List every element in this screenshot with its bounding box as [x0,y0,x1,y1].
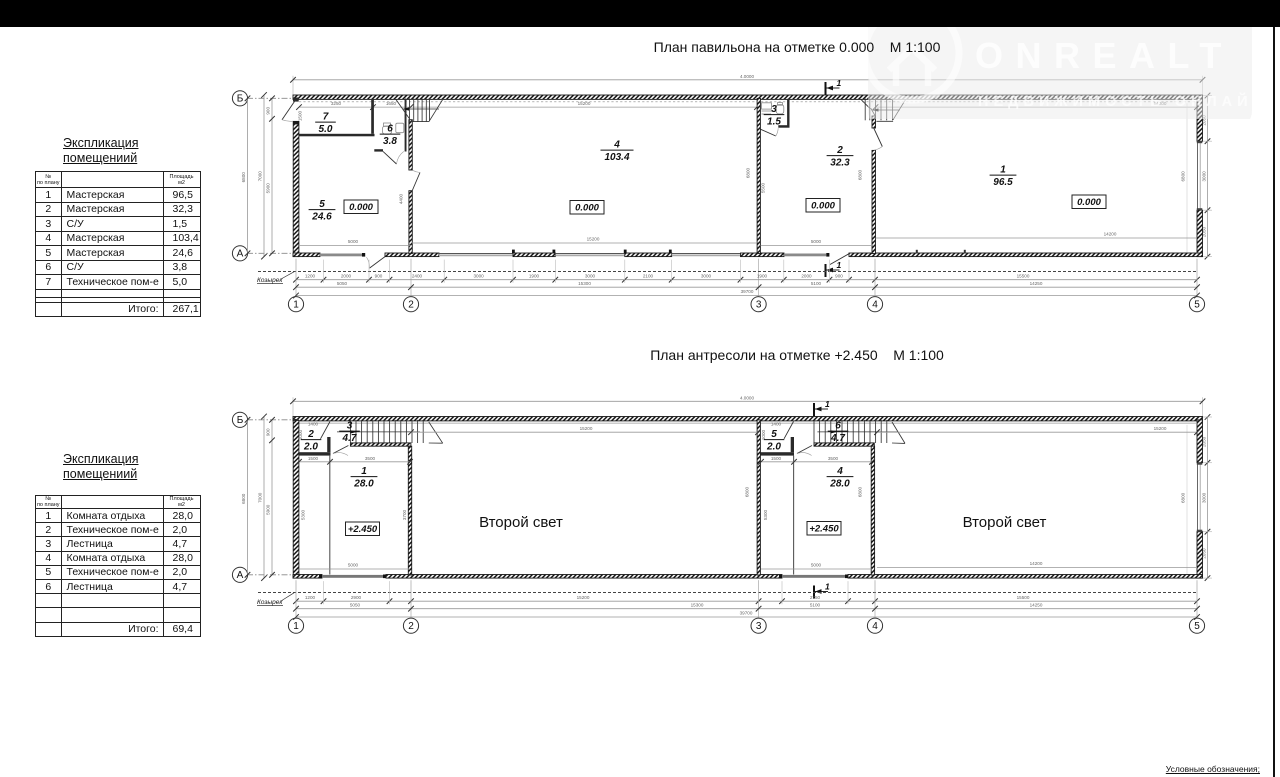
svg-text:3: 3 [771,104,777,115]
svg-text:5300: 5300 [301,509,306,520]
svg-text:2100: 2100 [643,273,654,278]
svg-text:15300: 15300 [578,281,591,286]
svg-text:3500: 3500 [828,456,839,461]
svg-text:5000: 5000 [811,239,822,244]
svg-text:1500: 1500 [308,456,319,461]
svg-text:6800: 6800 [858,169,863,180]
svg-text:103.4: 103.4 [604,152,629,163]
svg-text:15200: 15200 [587,237,600,242]
svg-text:4: 4 [872,300,878,311]
svg-text:15200: 15200 [578,101,591,106]
svg-text:4.7: 4.7 [342,433,357,444]
svg-text:39700: 39700 [740,611,753,616]
svg-text:1200: 1200 [305,595,316,600]
svg-text:1500: 1500 [771,456,782,461]
svg-text:Б: Б [237,415,244,426]
svg-text:А: А [237,249,244,260]
svg-text:900: 900 [375,273,383,278]
svg-text:4: 4 [836,466,843,477]
svg-text:5300: 5300 [763,509,768,520]
svg-text:6800: 6800 [746,167,751,178]
svg-text:Б: Б [237,94,244,105]
svg-text:0.000: 0.000 [575,203,599,214]
svg-text:6800: 6800 [858,486,863,497]
svg-text:3700: 3700 [402,509,407,520]
svg-text:5: 5 [1194,300,1200,311]
svg-text:1900: 1900 [757,273,768,278]
svg-text:0.000: 0.000 [1077,197,1101,208]
svg-text:3500: 3500 [365,456,376,461]
svg-text:5000: 5000 [811,563,822,568]
svg-text:3000: 3000 [473,273,484,278]
svg-text:15200: 15200 [1154,426,1167,431]
svg-text:3: 3 [756,300,762,311]
svg-text:1400: 1400 [308,421,319,426]
svg-text:900: 900 [266,428,271,436]
svg-text:4400: 4400 [399,193,404,204]
svg-text:15500: 15500 [1017,595,1030,600]
svg-text:НЕДВИЖИМОСТЬ ОНЛАЙН: НЕДВИЖИМОСТЬ ОНЛАЙН [978,92,1268,110]
svg-text:5100: 5100 [810,602,821,607]
svg-text:1: 1 [825,582,830,592]
svg-text:5: 5 [1194,621,1200,632]
svg-text:+2.450: +2.450 [348,524,378,535]
svg-text:15200: 15200 [580,426,593,431]
svg-text:15300: 15300 [691,602,704,607]
svg-text:39700: 39700 [741,289,754,294]
svg-text:3: 3 [347,421,353,432]
svg-text:900: 900 [835,273,843,278]
svg-text:0.000: 0.000 [349,202,373,213]
svg-text:900: 900 [266,107,271,115]
svg-text:2750: 2750 [810,595,821,600]
svg-text:6800: 6800 [241,493,246,504]
svg-text:1: 1 [293,300,299,311]
svg-text:1000: 1000 [761,429,766,440]
svg-text:5900: 5900 [266,183,271,194]
svg-text:5: 5 [319,199,325,210]
svg-text:28.0: 28.0 [829,478,850,489]
svg-text:1.5: 1.5 [767,116,781,127]
svg-text:А: А [237,570,244,581]
svg-text:5000: 5000 [348,563,359,568]
svg-text:7: 7 [323,112,329,123]
svg-text:Козырек: Козырек [257,277,283,284]
svg-text:96.5: 96.5 [993,177,1013,188]
svg-text:1: 1 [1000,165,1006,176]
svg-text:5500: 5500 [760,182,765,193]
svg-text:1: 1 [825,399,830,409]
svg-text:4: 4 [613,140,620,151]
svg-text:6800: 6800 [745,486,750,497]
svg-text:3: 3 [756,621,762,632]
svg-text:3000: 3000 [585,273,596,278]
svg-text:6800: 6800 [1181,171,1186,182]
svg-text:3000: 3000 [1201,492,1206,503]
svg-text:7000: 7000 [258,171,263,182]
svg-text:6800: 6800 [241,172,246,183]
svg-text:0.000: 0.000 [811,201,835,212]
svg-text:24.6: 24.6 [311,211,332,222]
svg-text:3000: 3000 [701,273,712,278]
svg-text:4.7: 4.7 [830,433,845,444]
svg-text:14250: 14250 [1030,602,1043,607]
svg-text:2000: 2000 [801,273,812,278]
svg-text:2400: 2400 [412,273,423,278]
svg-text:2000: 2000 [341,273,352,278]
svg-text:2: 2 [408,621,414,632]
svg-text:5.0: 5.0 [319,124,333,135]
svg-text:1900: 1900 [529,273,540,278]
svg-text:2: 2 [408,300,414,311]
svg-text:3.8: 3.8 [383,136,397,147]
svg-text:Второй свет: Второй свет [479,514,563,531]
svg-text:2: 2 [307,429,314,440]
svg-text:7000: 7000 [258,492,263,503]
svg-text:6: 6 [835,421,841,432]
svg-text:5900: 5900 [266,504,271,515]
svg-text:4.0000: 4.0000 [740,74,754,79]
svg-text:5: 5 [771,429,777,440]
svg-text:1000: 1000 [298,429,303,440]
svg-text:2.0: 2.0 [766,441,781,452]
svg-text:1500: 1500 [298,110,303,121]
svg-text:1: 1 [293,621,299,632]
svg-text:15200: 15200 [577,595,590,600]
svg-text:5050: 5050 [337,281,348,286]
svg-text:1400: 1400 [771,421,782,426]
svg-text:2900: 2900 [351,595,362,600]
svg-text:5050: 5050 [350,602,361,607]
svg-text:1: 1 [361,466,367,477]
svg-text:Козырек: Козырек [257,599,283,606]
svg-text:2: 2 [836,145,843,156]
svg-text:15500: 15500 [1017,273,1030,278]
svg-text:6800: 6800 [1181,492,1186,503]
svg-text:14200: 14200 [1030,561,1043,566]
svg-text:28.0: 28.0 [353,478,374,489]
svg-text:1200: 1200 [305,273,316,278]
svg-text:4: 4 [872,621,878,632]
svg-text:+2.450: +2.450 [809,524,839,535]
svg-text:3000: 3000 [1201,171,1206,182]
svg-text:14250: 14250 [1030,281,1043,286]
svg-text:5000: 5000 [348,239,359,244]
svg-text:Второй свет: Второй свет [963,514,1047,531]
svg-text:1: 1 [837,260,842,270]
svg-text:32.3: 32.3 [830,157,850,168]
svg-text:6: 6 [387,124,393,135]
svg-text:1: 1 [837,78,842,88]
svg-text:2.0: 2.0 [303,441,318,452]
svg-text:4.0000: 4.0000 [740,396,754,401]
svg-text:5100: 5100 [811,281,822,286]
svg-text:14200: 14200 [1104,232,1117,237]
